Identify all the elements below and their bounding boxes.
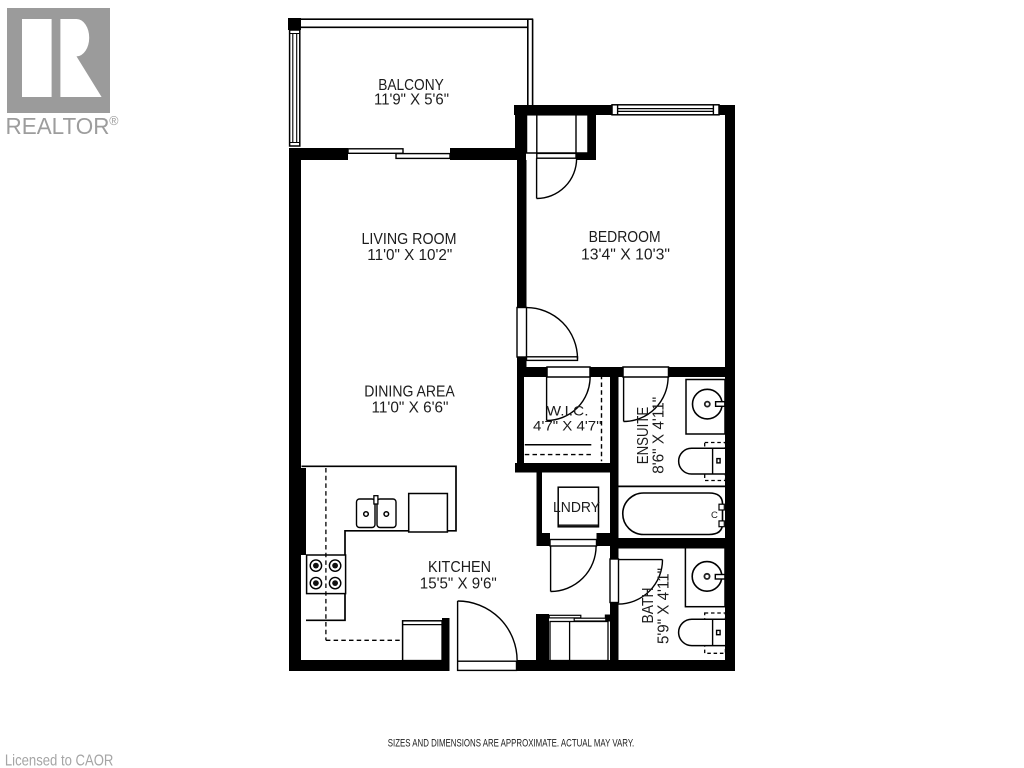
svg-text:C: C xyxy=(711,510,718,521)
svg-text:11'9" X 5'6": 11'9" X 5'6" xyxy=(374,92,449,109)
svg-text:DINING AREA: DINING AREA xyxy=(364,383,455,400)
svg-text:15'5" X 9'6": 15'5" X 9'6" xyxy=(420,575,497,592)
svg-text:BATH: BATH xyxy=(640,588,657,624)
svg-text:REALTOR: REALTOR xyxy=(6,113,110,139)
svg-text:Licensed to CAOR: Licensed to CAOR xyxy=(5,753,114,768)
svg-text:8'6" X 4'11": 8'6" X 4'11" xyxy=(651,397,668,474)
svg-text:13'4" X 10'3": 13'4" X 10'3" xyxy=(581,247,670,264)
svg-text:LIVING ROOM: LIVING ROOM xyxy=(362,231,457,248)
svg-text:SIZES AND DIMENSIONS ARE APPRO: SIZES AND DIMENSIONS ARE APPROXIMATE. AC… xyxy=(388,737,635,749)
svg-text:BEDROOM: BEDROOM xyxy=(589,229,661,246)
svg-text:11'0" X 6'6": 11'0" X 6'6" xyxy=(372,400,449,417)
svg-text:11'0" X 10'2": 11'0" X 10'2" xyxy=(367,247,452,264)
svg-text:KITCHEN: KITCHEN xyxy=(428,559,491,576)
svg-text:W.I.C.: W.I.C. xyxy=(547,402,589,418)
svg-text:®: ® xyxy=(109,114,119,128)
svg-text:ENSUITE: ENSUITE xyxy=(635,407,652,465)
svg-text:5'9" X 4'11": 5'9" X 4'11" xyxy=(656,568,673,644)
svg-text:4'7" X 4'7": 4'7" X 4'7" xyxy=(533,417,602,433)
svg-text:LNDRY: LNDRY xyxy=(553,500,600,516)
